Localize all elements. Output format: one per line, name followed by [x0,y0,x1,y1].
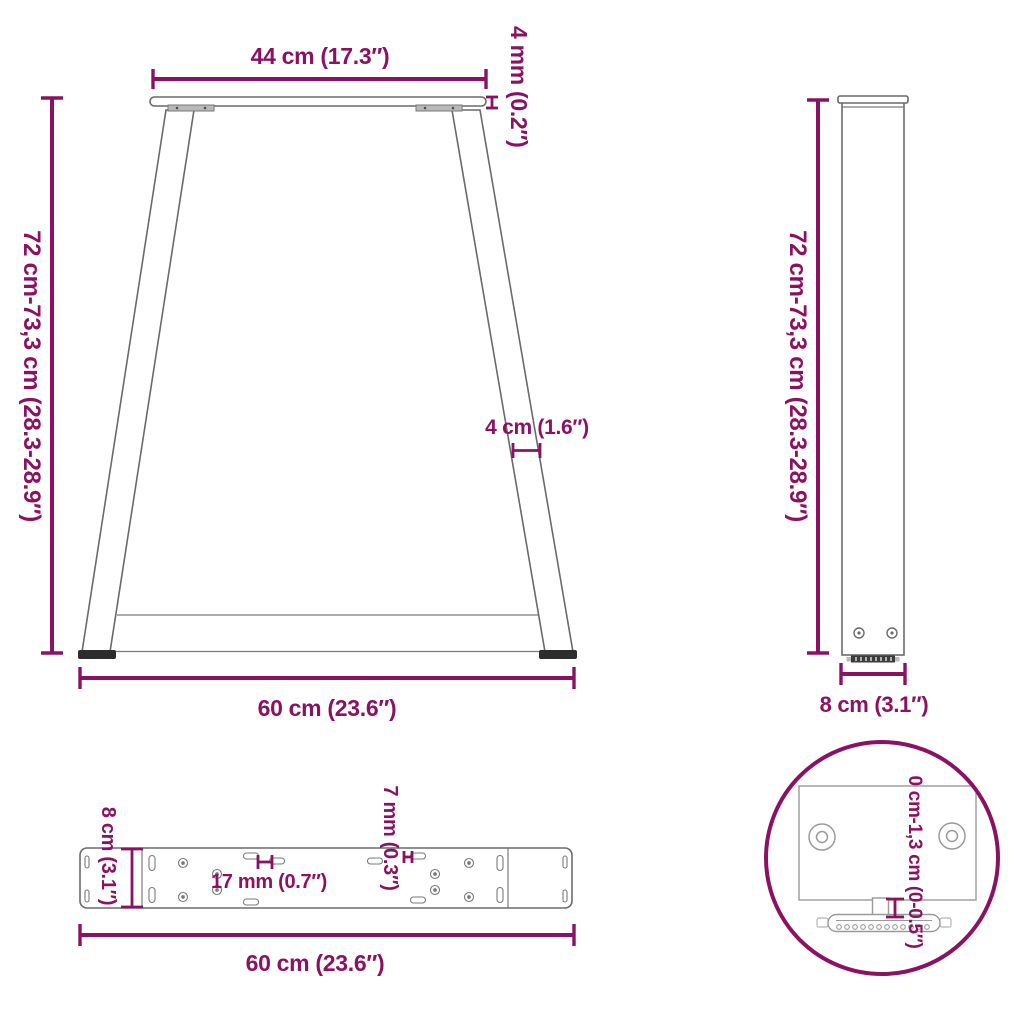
front-bottom-width-dimension: 60 cm (23.6″) [80,667,574,721]
side-leg-body [842,98,904,655]
detail-view: 0 cm-1,3 cm (0-0.5″) [766,742,998,974]
product-dimension-diagram: 44 cm (17.3″) 4 mm (0.2″) 72 cm-73,3 cm … [0,0,1024,1024]
side-width-label: 8 cm (3.1″) [820,692,929,717]
top-length-dimension: 60 cm (23.6″) [80,924,574,976]
front-height-label: 72 cm-73,3 cm (28.3-28.9″) [18,230,45,522]
side-width-dimension: 8 cm (3.1″) [820,663,929,717]
front-height-dimension: 72 cm-73,3 cm (28.3-28.9″) [18,98,63,653]
front-bottom-width-label: 60 cm (23.6″) [258,695,397,721]
detail-adjustment-label: 0 cm-1,3 cm (0-0.5″) [904,775,925,948]
top-length-label: 60 cm (23.6″) [246,950,385,976]
front-right-leg [452,110,573,652]
top-slot-label: 7 mm (0.3″) [379,785,401,890]
front-plate-thickness-label: 4 mm (0.2″) [506,26,532,147]
front-left-foot [78,650,116,659]
front-left-leg [82,110,194,652]
side-height-dimension: 72 cm-73,3 cm (28.3-28.9″) [784,100,829,653]
side-height-label: 72 cm-73,3 cm (28.3-28.9″) [784,230,811,522]
side-adjustable-foot [847,656,900,663]
side-top-plate [838,96,908,103]
front-top-width-label: 44 cm (17.3″) [251,43,390,69]
front-leg-width-label: 4 cm (1.6″) [485,416,589,439]
front-right-foot [539,650,577,659]
front-stretcher [108,615,547,652]
front-view: 44 cm (17.3″) 4 mm (0.2″) 72 cm-73,3 cm … [18,26,589,721]
top-hole-label: 17 mm (0.7″) [211,871,327,893]
top-view: 8 cm (3.1″) 17 mm (0.7″) 7 mm (0.3″) 60 … [80,785,574,976]
side-view: 72 cm-73,3 cm (28.3-28.9″) 8 cm (3.1″) [784,96,928,717]
diagram-canvas: 44 cm (17.3″) 4 mm (0.2″) 72 cm-73,3 cm … [0,0,1024,1024]
front-top-width-dimension: 44 cm (17.3″) [153,43,486,89]
front-leg-width-dimension: 4 cm (1.6″) [485,416,589,458]
front-right-bracket [416,105,462,111]
front-left-bracket [168,105,214,111]
front-plate-thickness-dimension: 4 mm (0.2″) [486,26,532,147]
top-depth-label: 8 cm (3.1″) [97,807,119,906]
